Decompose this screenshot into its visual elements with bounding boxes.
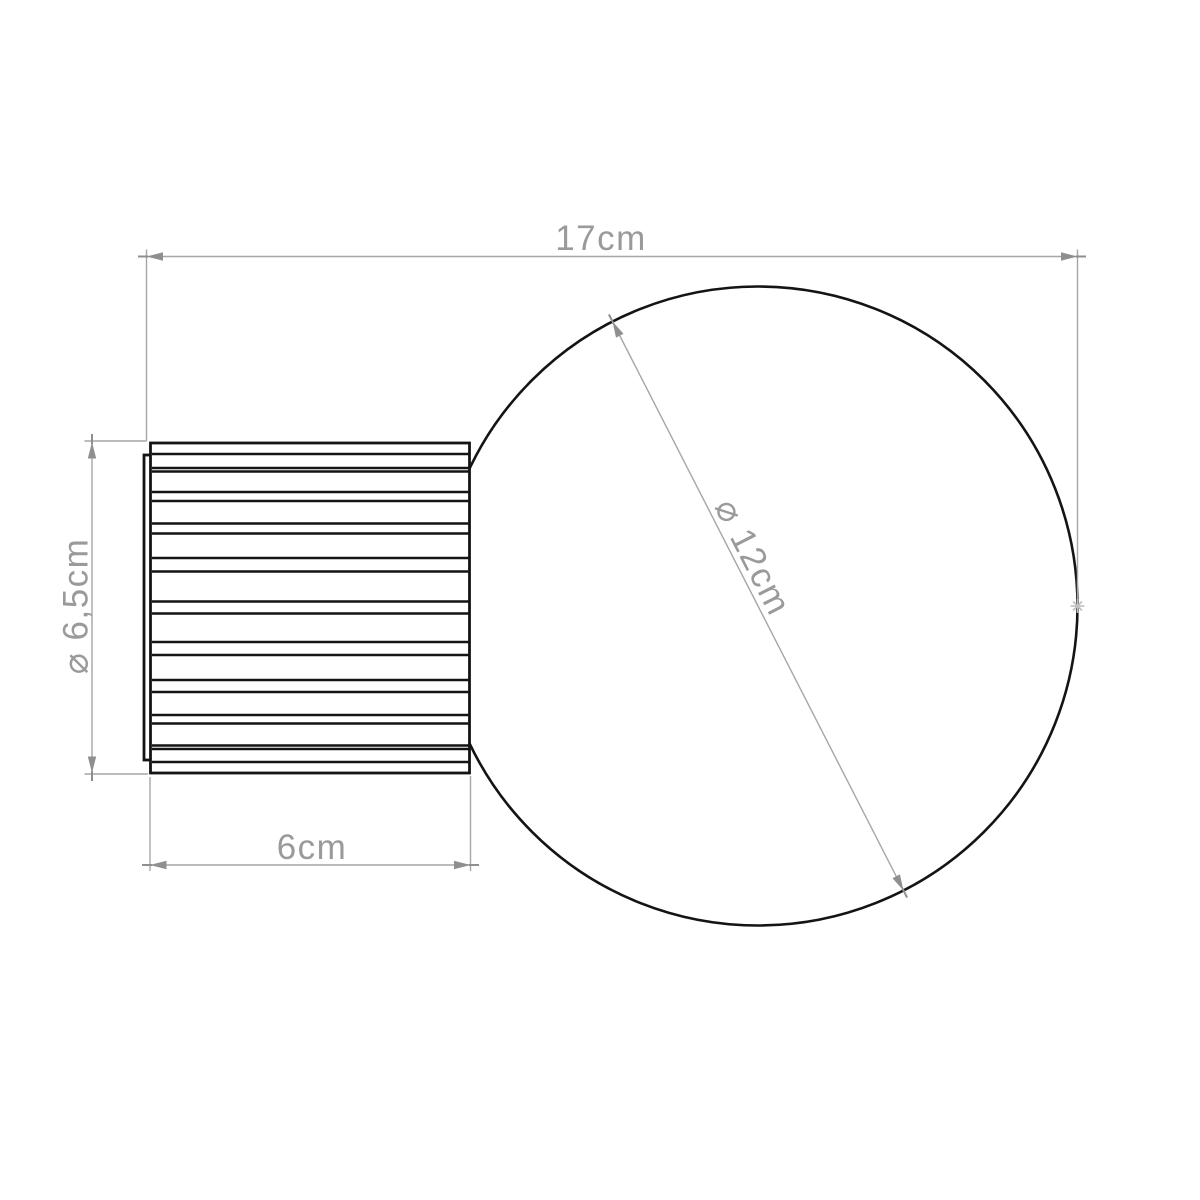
dimension-base-width: 6cm [142,776,479,871]
arrowhead-right-icon [454,861,471,869]
dimension-globe-diameter: ⌀ 12cm [609,314,907,897]
arrowhead-upleft-icon [613,322,624,338]
arrowhead-left-icon [150,861,167,869]
arrowhead-down-icon [88,757,96,774]
arrowhead-left-icon [147,252,164,260]
arrowhead-downright-icon [893,874,904,890]
globe-diameter-label: ⌀ 12cm [707,492,799,621]
dimension-drawing: 17cm ⌀ 6,5cm 6cm [0,0,1200,1200]
arrowhead-right-icon [1061,252,1078,260]
measure-point-star-icon [1071,599,1085,613]
overall-width-label: 17cm [555,219,647,258]
arrowhead-up-icon [88,442,96,459]
base-diameter-label: ⌀ 6,5cm [57,538,96,675]
drawing-svg: 17cm ⌀ 6,5cm 6cm [0,0,1200,1200]
dimension-base-diameter: ⌀ 6,5cm [57,434,149,781]
base-width-label: 6cm [277,828,348,867]
